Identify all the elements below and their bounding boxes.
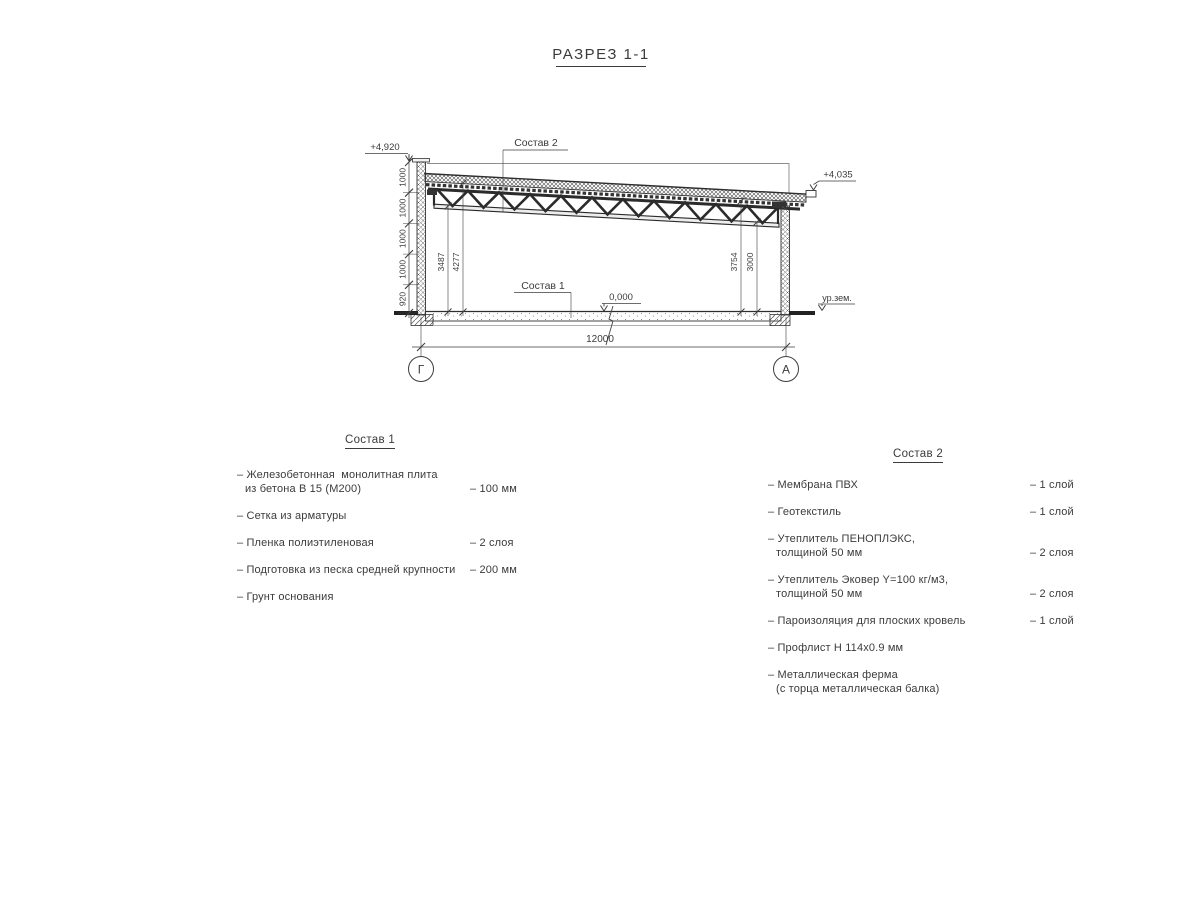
- wall-right: [781, 206, 790, 315]
- composition2-list: – Мембрана ПВХ – 1 слой – Геотекстиль – …: [768, 478, 1088, 709]
- material-name: – Мембрана ПВХ: [768, 478, 1030, 492]
- callouts: Состав 2 Состав 1: [503, 137, 571, 318]
- material-value: – 100 мм: [470, 482, 537, 496]
- material-name: – Подготовка из песка средней крупности: [237, 563, 470, 577]
- dim-wall-1: 1000: [398, 198, 408, 217]
- callout-floor-label: Состав 1: [521, 280, 565, 292]
- parapet-cap: [413, 159, 430, 163]
- material-row: – Пленка полиэтиленовая – 2 слоя: [237, 536, 537, 550]
- ground-line-right: [789, 311, 815, 315]
- material-value: – 2 слоя: [1030, 546, 1088, 560]
- material-name: – Сетка из арматуры: [237, 509, 470, 523]
- roof-edge-flashing: [806, 191, 816, 198]
- material-row: – Подготовка из песка средней крупности …: [237, 563, 537, 577]
- dim-wall-3: 1000: [398, 260, 408, 279]
- material-row: – Профлист Н 114х0.9 мм: [768, 641, 1088, 655]
- axis-left-label: Г: [418, 363, 425, 377]
- footing-right: [770, 315, 790, 326]
- material-value: – 2 слоя: [470, 536, 537, 550]
- footing-left: [411, 315, 433, 326]
- dim-span: 12000: [586, 334, 614, 345]
- truss-bearing-left: [427, 190, 437, 196]
- material-row: – Железобетонная монолитная плита из бет…: [237, 468, 537, 496]
- elevation-parapet-mark: +4,920: [365, 142, 413, 161]
- material-name: – Пленка полиэтиленовая: [237, 536, 470, 550]
- dim-height-right-outer: 3754: [729, 252, 739, 271]
- material-value: – 1 слой: [1030, 478, 1088, 492]
- composition1-list: – Железобетонная монолитная плита из бет…: [237, 468, 537, 617]
- material-row: – Сетка из арматуры: [237, 509, 537, 523]
- material-value: – 200 мм: [470, 563, 537, 577]
- dim-wall-4: 920: [398, 292, 408, 306]
- material-name: – Геотекстиль: [768, 505, 1030, 519]
- section-drawing: РАЗРЕЗ 1-1: [0, 0, 1200, 430]
- material-name: – Грунт основания: [237, 590, 470, 604]
- material-row: – Грунт основания: [237, 590, 537, 604]
- material-row: – Металлическая ферма (с торца металличе…: [768, 668, 1088, 696]
- elevation-roof-edge: +4,035: [823, 170, 852, 181]
- callout-roof-label: Состав 2: [514, 137, 558, 149]
- material-value: – 2 слоя: [1030, 587, 1088, 601]
- material-name: – Пароизоляция для плоских кровель: [768, 614, 1030, 628]
- composition1-heading: Состав 1: [345, 434, 395, 449]
- elevation-roof-edge-mark: +4,035: [810, 170, 856, 191]
- elevation-floor: 0,000: [609, 292, 633, 303]
- drawing-title: РАЗРЕЗ 1-1: [552, 46, 650, 67]
- axis-right-label: А: [782, 363, 790, 377]
- floor-slab: [426, 312, 782, 322]
- dim-height-left-inner: 3487: [436, 252, 446, 271]
- span-dimension: 12000 Г А: [409, 317, 799, 382]
- page-title: РАЗРЕЗ 1-1: [552, 46, 650, 63]
- dim-height-left-outer: 4277: [451, 252, 461, 271]
- material-row: – Утеплитель Эковер Y=100 кг/м3, толщино…: [768, 573, 1088, 601]
- axis-marker-right: А: [774, 357, 799, 382]
- ground-level-label: ур.зем.: [822, 293, 852, 303]
- dim-height-right-inner: 3000: [745, 252, 755, 271]
- material-row: – Пароизоляция для плоских кровель – 1 с…: [768, 614, 1088, 628]
- axis-marker-left: Г: [409, 357, 434, 382]
- dim-wall-0: 1000: [398, 168, 408, 187]
- material-name: – Металлическая ферма (с торца металличе…: [768, 668, 1030, 696]
- material-name: – Утеплитель ПЕНОПЛЭКС, толщиной 50 мм: [768, 532, 1030, 560]
- ground-level-mark: ур.зем.: [818, 293, 855, 311]
- material-row: – Мембрана ПВХ – 1 слой: [768, 478, 1088, 492]
- composition2-heading: Состав 2: [893, 448, 943, 463]
- material-name: – Железобетонная монолитная плита из бет…: [237, 468, 470, 496]
- wall-left: [417, 162, 426, 315]
- material-name: – Утеплитель Эковер Y=100 кг/м3, толщино…: [768, 573, 1030, 601]
- material-row: – Геотекстиль – 1 слой: [768, 505, 1088, 519]
- material-value: – 1 слой: [1030, 505, 1088, 519]
- elevation-parapet: +4,920: [370, 142, 399, 153]
- material-value: – 1 слой: [1030, 614, 1088, 628]
- dim-wall-2: 1000: [398, 229, 408, 248]
- material-row: – Утеплитель ПЕНОПЛЭКС, толщиной 50 мм –…: [768, 532, 1088, 560]
- left-dimension-chain: 1000 1000 1000 1000 920: [398, 155, 420, 318]
- elevation-floor-mark: 0,000: [601, 292, 642, 311]
- material-name: – Профлист Н 114х0.9 мм: [768, 641, 1030, 655]
